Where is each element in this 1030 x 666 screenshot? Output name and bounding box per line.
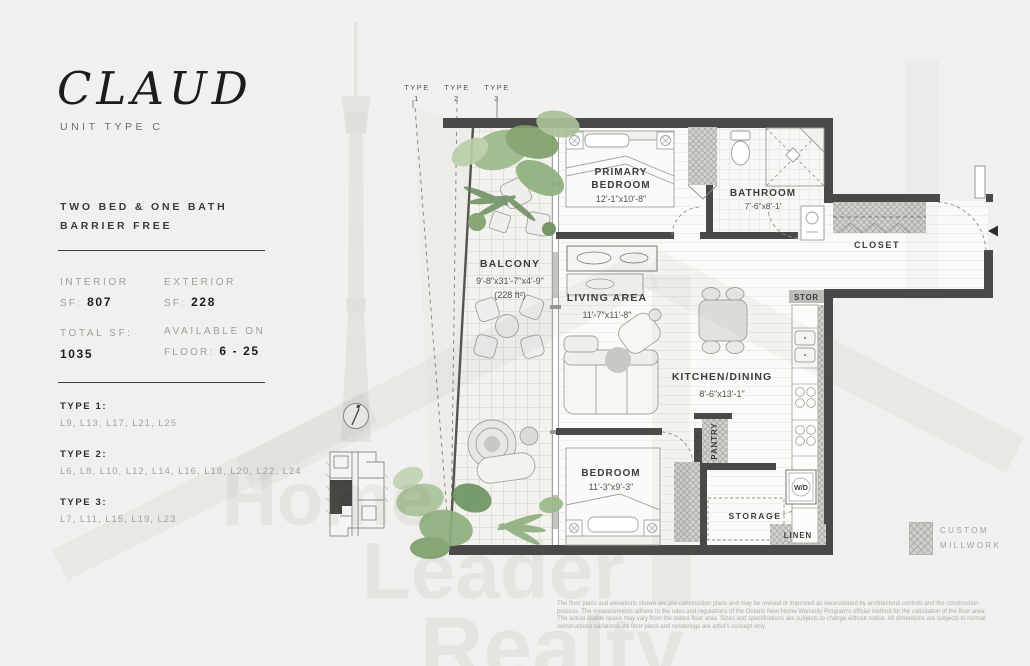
divider — [58, 382, 265, 383]
svg-text:BATHROOM: BATHROOM — [730, 188, 796, 199]
type-marker-2: TYPE 2 — [444, 83, 470, 103]
type-3-levels: L7, L11, L15, L19, L23 — [60, 514, 176, 525]
primary-bedroom-label: PRIMARY BEDROOM 12'-1"x10'-8" — [591, 167, 650, 204]
unit-description-line1: TWO BED & ONE BATH — [60, 201, 227, 213]
svg-text:LIVING AREA: LIVING AREA — [567, 292, 647, 304]
interior-label: INTERIOR — [60, 277, 129, 288]
svg-text:BALCONY: BALCONY — [480, 258, 540, 270]
svg-text:TYPE: TYPE — [404, 83, 430, 92]
svg-text:11'-3"x9'-3": 11'-3"x9'-3" — [589, 482, 634, 492]
svg-text:2: 2 — [454, 94, 460, 103]
stool — [520, 427, 538, 445]
legend-line2: MILLWORK — [940, 541, 1001, 550]
disclaimer-text: The floor plans and elevations shown are… — [557, 601, 990, 631]
svg-text:9'-8"x31'-7"x4'-9": 9'-8"x31'-7"x4'-9" — [476, 276, 544, 286]
balcony-table — [496, 315, 519, 338]
unit-type-subtitle: UNIT TYPE C — [60, 121, 163, 133]
available-floors: FLOOR: 6 - 25 — [164, 344, 260, 358]
svg-text:(228 ft²): (228 ft²) — [494, 290, 526, 300]
type-2-label: TYPE 2: — [60, 449, 107, 460]
svg-text:8'-6"x13'-1": 8'-6"x13'-1" — [699, 389, 744, 399]
svg-text:KITCHEN/DINING: KITCHEN/DINING — [672, 371, 772, 383]
closet-millwork — [833, 202, 926, 233]
type-marker-1: TYPE 1 — [404, 83, 430, 103]
toilet-bowl — [732, 141, 750, 165]
exterior-sf-prefix: SF: — [164, 298, 191, 309]
svg-text:11'-7"x11'-8": 11'-7"x11'-8" — [582, 310, 631, 320]
svg-text:BEDROOM: BEDROOM — [581, 468, 640, 479]
divider — [58, 250, 265, 251]
wd-label: W/D — [794, 483, 808, 492]
pantry-label: PANTRY — [710, 422, 719, 459]
entry-arrow-icon — [988, 226, 998, 237]
media-console — [567, 246, 657, 295]
side-table — [649, 309, 661, 321]
entry-door-leaf — [975, 166, 985, 198]
type-1-label: TYPE 1: — [60, 401, 107, 412]
svg-text:PRIMARY: PRIMARY — [595, 167, 648, 178]
total-sf-value-row: 1035 — [60, 347, 93, 361]
exterior-label: EXTERIOR — [164, 277, 236, 288]
svg-text:12'-1"x10'-8": 12'-1"x10'-8" — [596, 194, 646, 204]
toilet-tank — [731, 131, 750, 140]
available-floors-prefix: FLOOR: — [164, 347, 219, 358]
available-on-label: AVAILABLE ON — [164, 326, 265, 337]
type-2-levels: L6, L8, L10, L12, L14, L16, L18, L20, L2… — [60, 466, 301, 477]
cn-tower-watermark — [341, 22, 371, 442]
available-floors-value: 6 - 25 — [219, 344, 259, 358]
key-plan — [326, 452, 388, 536]
stor-label: STOR — [789, 290, 824, 303]
legend-line1: CUSTOM — [940, 526, 989, 535]
storage-label: STORAGE — [728, 511, 781, 521]
exterior-sf-value: 228 — [191, 295, 216, 309]
total-sf-label: TOTAL SF: — [60, 328, 133, 339]
coffee-table — [605, 347, 631, 373]
kitchen-counter — [792, 305, 818, 543]
svg-text:7'-6"x8'-1': 7'-6"x8'-1' — [745, 201, 782, 211]
interior-sf: SF: 807 — [60, 295, 112, 309]
svg-text:BEDROOM: BEDROOM — [591, 180, 650, 191]
type-marker-3: TYPE 3 — [484, 83, 510, 103]
type-3-label: TYPE 3: — [60, 497, 107, 508]
svg-text:TYPE: TYPE — [484, 83, 510, 92]
total-sf-value: 1035 — [60, 347, 93, 361]
svg-text:3: 3 — [494, 94, 500, 103]
linen-label: LINEN — [784, 531, 812, 540]
svg-text:TYPE: TYPE — [444, 83, 470, 92]
custom-millwork-swatch — [909, 522, 933, 555]
type-1-levels: L9, L13, L17, L21, L25 — [60, 418, 177, 429]
bedroom-furniture — [566, 448, 660, 545]
interior-sf-prefix: SF: — [60, 298, 87, 309]
north-arrow-icon — [344, 404, 369, 429]
svg-text:STOR: STOR — [794, 293, 819, 302]
vanity — [801, 206, 824, 240]
svg-text:1: 1 — [414, 94, 420, 103]
floorplan-page: TYPE 1 TYPE 2 TYPE 3 PRIMARY BEDROOM 12'… — [0, 0, 1030, 666]
page-title: CLAUD — [57, 62, 253, 115]
bedroom-wardrobe-millwork — [674, 462, 700, 542]
exterior-sf: SF: 228 — [164, 295, 216, 309]
unit-description-line2: BARRIER FREE — [60, 220, 172, 232]
interior-sf-value: 807 — [87, 295, 112, 309]
closet-label: CLOSET — [854, 240, 900, 250]
dining-table — [699, 300, 747, 341]
